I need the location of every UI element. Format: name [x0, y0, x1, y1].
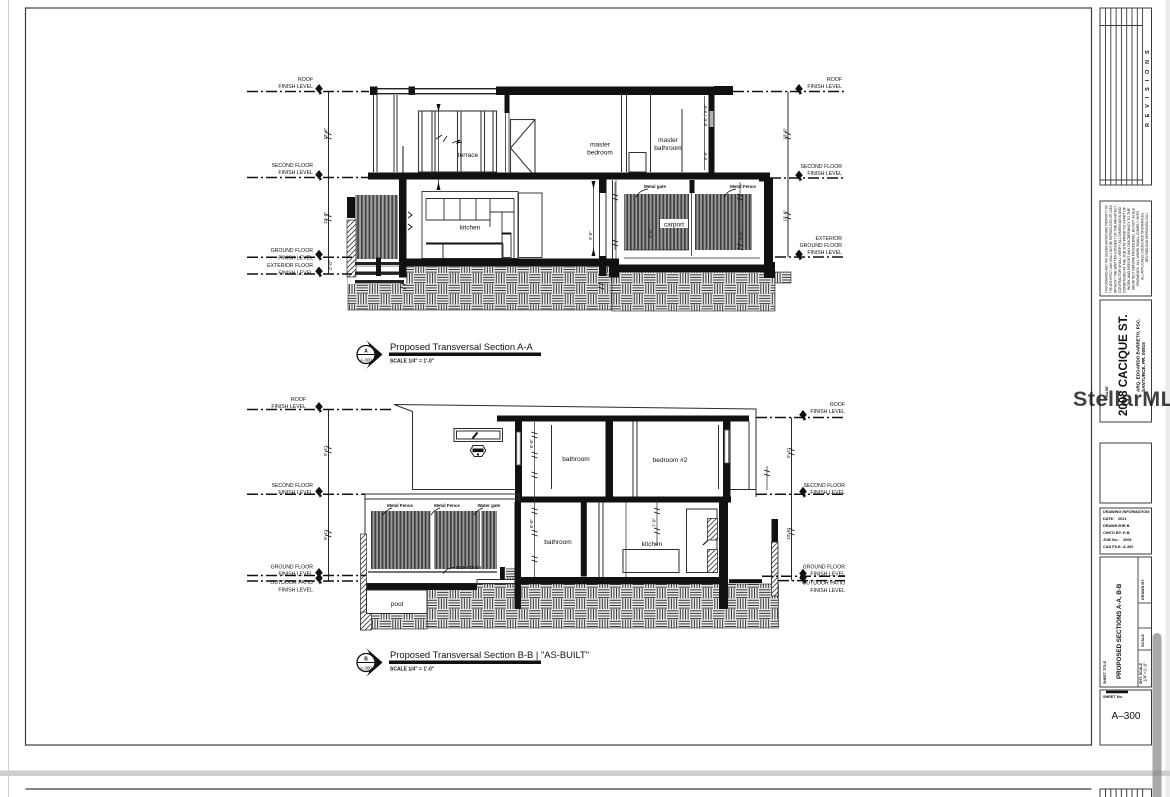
svg-text:THE ARCHITECT AND SHALL NOT BE: THE ARCHITECT AND SHALL NOT BE REPRODUCE…: [1109, 205, 1113, 293]
svg-text:6'-6": 6'-6": [703, 151, 708, 160]
svg-text:FINISH LEVEL: FINISH LEVEL: [807, 250, 842, 256]
svg-text:terrace: terrace: [458, 152, 479, 159]
svg-text:A-300: A-300: [360, 666, 372, 671]
svg-text:JOB No.:: JOB No.:: [1103, 538, 1119, 542]
svg-text:FINISH LEVEL: FINISH LEVEL: [810, 588, 845, 594]
svg-text:WITHOUT THE WRITTEN CONSENT OF: WITHOUT THE WRITTEN CONSENT OF THE ARCHI…: [1114, 205, 1118, 293]
svg-text:DRAWN BY: DRAWN BY: [1141, 579, 1145, 600]
svg-text:GROUND FLOOR: GROUND FLOOR: [803, 565, 846, 571]
svg-text:8'-0": 8'-0": [529, 519, 534, 528]
svg-text:REVISED AND APPROVED 2021.: REVISED AND APPROVED 2021.: [1145, 212, 1149, 262]
svg-text:10'-6": 10'-6": [783, 209, 789, 222]
svg-text:R E V I S I O N S: R E V I S I O N S: [1145, 48, 1151, 127]
svg-text:CAD FILE:: CAD FILE:: [1103, 545, 1122, 549]
svg-text:Water gate: Water gate: [478, 503, 501, 508]
svg-text:ROOF: ROOF: [827, 77, 842, 83]
svg-text:GROUND FLOOR: GROUND FLOOR: [271, 248, 314, 254]
svg-text:carport: carport: [664, 222, 684, 229]
svg-text:9'-4": 9'-4": [323, 530, 329, 540]
svg-text:8'-0" / 9'-0": 8'-0" / 9'-0": [703, 104, 708, 126]
svg-text:9'-4": 9'-4": [323, 446, 329, 456]
svg-text:SCALE 1/4" = 1'-0": SCALE 1/4" = 1'-0": [390, 667, 435, 673]
svg-text:Proposed Transversal Section B: Proposed Transversal Section B-B | "AS-B…: [390, 649, 589, 660]
svg-text:SECOND FLOOR: SECOND FLOOR: [803, 483, 845, 489]
svg-text:FINISH LEVEL: FINISH LEVEL: [807, 84, 842, 90]
svg-text:DRAWINGS. ALL WORK SHALL COMPL: DRAWINGS. ALL WORK SHALL COMPLY WITH: [1136, 211, 1140, 286]
svg-text:CHK'D BY:: CHK'D BY:: [1103, 531, 1122, 535]
svg-text:Metal gate: Metal gate: [644, 184, 667, 189]
svg-text:bedroom: bedroom: [587, 150, 613, 157]
svg-text:bathroom: bathroom: [654, 145, 681, 152]
svg-text:ARCHITECT BEFORE PROCEEDING. D: ARCHITECT BEFORE PROCEEDING. DO NOT SCAL…: [1132, 208, 1136, 290]
svg-text:E.B.: E.B.: [1123, 524, 1130, 528]
svg-text:FINISH LEVEL: FINISH LEVEL: [278, 490, 313, 496]
svg-text:GROUND FLOOR: GROUND FLOOR: [271, 565, 314, 571]
svg-text:SECOND FLOOR: SECOND FLOOR: [800, 164, 842, 170]
svg-text:ROOF: ROOF: [298, 77, 313, 83]
svg-text:bathroom: bathroom: [562, 456, 589, 463]
svg-text:FINISH LEVEL: FINISH LEVEL: [278, 271, 313, 277]
svg-text:kitchen: kitchen: [460, 225, 481, 232]
svg-text:FINISH LEVEL: FINISH LEVEL: [278, 256, 313, 262]
svg-text:9'-0": 9'-0": [739, 231, 744, 240]
svg-text:SHT. SCALE: SHT. SCALE: [1139, 662, 1143, 684]
svg-text:FINISH LEVEL: FINISH LEVEL: [278, 84, 313, 90]
svg-text:FINISH LEVEL: FINISH LEVEL: [278, 588, 313, 594]
svg-text:E.B.: E.B.: [1123, 531, 1130, 535]
svg-text:FINISH LEVEL: FINISH LEVEL: [810, 490, 845, 496]
svg-text:bedroom #2: bedroom #2: [653, 457, 688, 464]
svg-text:GROUND FLOOR: GROUND FLOOR: [800, 243, 843, 249]
svg-text:FINISH LEVEL: FINISH LEVEL: [810, 572, 845, 578]
svg-text:FINISH LEVEL: FINISH LEVEL: [810, 409, 845, 415]
svg-text:Proposed Transversal Section A: Proposed Transversal Section A-A: [390, 341, 534, 352]
svg-text:A: A: [364, 349, 368, 355]
svg-text:A-300: A-300: [1123, 545, 1133, 549]
svg-text:A-300: A-300: [360, 358, 372, 363]
svg-text:10'-0": 10'-0": [323, 211, 329, 224]
svg-text:PROPOSED SECTIONS A-A, B-B: PROPOSED SECTIONS A-A, B-B: [1116, 583, 1123, 679]
svg-text:9'-0": 9'-0": [648, 229, 653, 238]
svg-text:WORK AND REPORT ANY DISCREPANC: WORK AND REPORT ANY DISCREPANCY TO THE: [1127, 208, 1131, 290]
svg-text:FINISH LEVEL: FINISH LEVEL: [278, 170, 313, 176]
svg-text:kitchen: kitchen: [642, 541, 663, 548]
svg-text:1/4"=1'-0": 1/4"=1'-0": [1143, 662, 1148, 682]
svg-text:master: master: [590, 142, 611, 149]
svg-text:10'-6": 10'-6": [783, 127, 789, 140]
svg-text:OUTDOOR PATIO: OUTDOOR PATIO: [270, 580, 313, 586]
svg-text:7'-0": 7'-0": [652, 518, 657, 527]
svg-text:9'-4": 9'-4": [786, 448, 792, 458]
svg-text:Metal Fence: Metal Fence: [434, 503, 460, 508]
svg-text:DATE:: DATE:: [1103, 517, 1114, 521]
svg-text:2021: 2021: [1118, 517, 1126, 521]
svg-text:ROOF: ROOF: [830, 402, 845, 408]
svg-text:Metal Fence: Metal Fence: [387, 503, 413, 508]
svg-text:SHEET No.: SHEET No.: [1103, 695, 1123, 699]
svg-text:OUTDOOR PATIO: OUTDOOR PATIO: [802, 581, 845, 587]
svg-text:THIS DRAWING AND THE DESIGN SH: THIS DRAWING AND THE DESIGN SHOWN ARE PR…: [1105, 204, 1109, 293]
svg-text:ARQ. EDGARDO BARRETO, PSC.: ARQ. EDGARDO BARRETO, PSC.: [1136, 319, 1141, 392]
svg-text:2008: 2008: [1123, 538, 1131, 542]
svg-text:FINISH LEVEL: FINISH LEVEL: [807, 171, 842, 177]
svg-text:EXTERIOR: EXTERIOR: [815, 236, 842, 242]
svg-text:CONDITIONS AT THE JOB SITE PRI: CONDITIONS AT THE JOB SITE PRIOR TO STAR…: [1123, 206, 1127, 293]
svg-text:SECOND FLOOR: SECOND FLOOR: [271, 483, 313, 489]
svg-text:FINISH LEVEL: FINISH LEVEL: [278, 572, 313, 578]
svg-text:pool: pool: [391, 601, 404, 608]
svg-text:SCALE 1/4" = 1'-0": SCALE 1/4" = 1'-0": [390, 359, 435, 365]
svg-text:SECOND FLOOR: SECOND FLOOR: [271, 163, 313, 169]
svg-text:2'-0": 2'-0": [328, 260, 334, 270]
svg-text:SANTURCE, PR. 00915: SANTURCE, PR. 00915: [1141, 342, 1146, 392]
svg-text:SCALE: SCALE: [1141, 634, 1145, 647]
svg-text:9'-6": 9'-6": [588, 231, 593, 240]
svg-text:EXTERIOR FLOOR: EXTERIOR FLOOR: [267, 263, 313, 269]
svg-text:bathroom: bathroom: [544, 539, 571, 546]
svg-text:StellarMLS: StellarMLS: [1073, 387, 1170, 411]
svg-text:FINISH LEVEL: FINISH LEVEL: [271, 404, 306, 410]
svg-text:Water Drain: Water Drain: [456, 565, 481, 570]
svg-text:8'-0": 8'-0": [529, 439, 534, 448]
svg-text:10'-6": 10'-6": [323, 127, 329, 140]
svg-text:SHEET TITLE: SHEET TITLE: [1103, 660, 1107, 684]
svg-text:CONTRACTOR SHALL VERIFY ALL DI: CONTRACTOR SHALL VERIFY ALL DIMENSIONS A…: [1118, 207, 1122, 293]
svg-text:A–300: A–300: [1112, 711, 1141, 722]
svg-text:10'-6": 10'-6": [786, 527, 792, 540]
svg-text:DRAWN BY:: DRAWN BY:: [1103, 524, 1125, 528]
svg-text:ROOF: ROOF: [291, 397, 306, 403]
svg-text:ALL APPLICABLE CODES AND ORDIN: ALL APPLICABLE CODES AND ORDINANCES.: [1141, 212, 1145, 280]
svg-text:B: B: [364, 657, 368, 663]
svg-text:DRAWING INFORMATION:: DRAWING INFORMATION:: [1103, 510, 1150, 514]
svg-text:Metal Fence: Metal Fence: [730, 184, 756, 189]
svg-text:master: master: [658, 137, 679, 144]
